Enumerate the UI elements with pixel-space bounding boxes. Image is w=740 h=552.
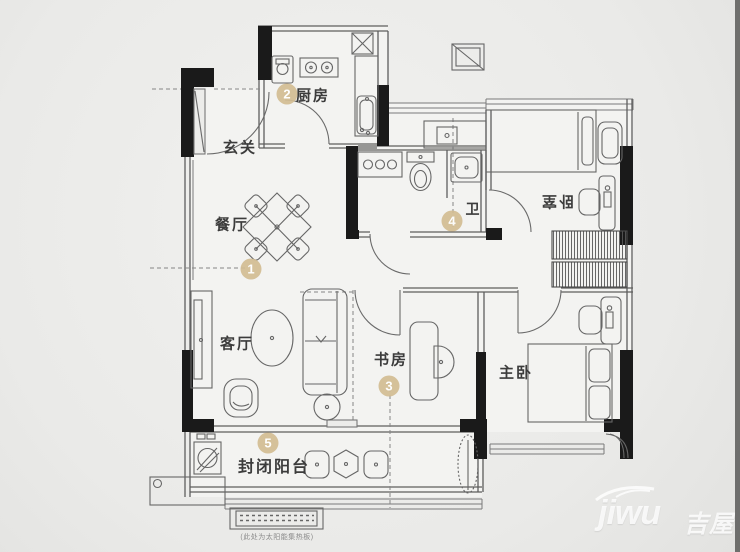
marker-5-balcony: 5 (258, 433, 279, 454)
wardrobes (552, 231, 627, 287)
room-label-bedroom: 卧室 (540, 192, 574, 213)
marker-1-dining: 1 (241, 259, 262, 280)
room-label-master: 主卧 (499, 362, 533, 383)
marker-2-kitchen: 2 (277, 84, 298, 105)
room-label-study: 书房 (374, 349, 408, 370)
balcony-sliding-door (327, 420, 357, 427)
room-label-bath: 卫 (466, 199, 481, 219)
room-label-living: 客厅 (220, 333, 254, 354)
floorplan-drawing (0, 0, 740, 552)
floorplan: 玄关 厨房 餐厅 卫 卧室 书房 客厅 主卧 封闭阳台 1 2 3 4 5 (此… (0, 0, 740, 552)
room-label-entrance: 玄关 (223, 137, 257, 158)
photo-edge (735, 0, 740, 552)
marker-4-bath: 4 (442, 211, 463, 232)
marker-3-study: 3 (379, 376, 400, 397)
solar-panel (230, 508, 323, 529)
solar-note: (此处为太阳能集热板) (240, 532, 313, 542)
room-label-balcony: 封闭阳台 (238, 453, 310, 477)
room-label-dining: 餐厅 (215, 214, 249, 235)
room-label-kitchen: 厨房 (296, 85, 330, 106)
ac-outdoor-unit-top (452, 44, 484, 70)
